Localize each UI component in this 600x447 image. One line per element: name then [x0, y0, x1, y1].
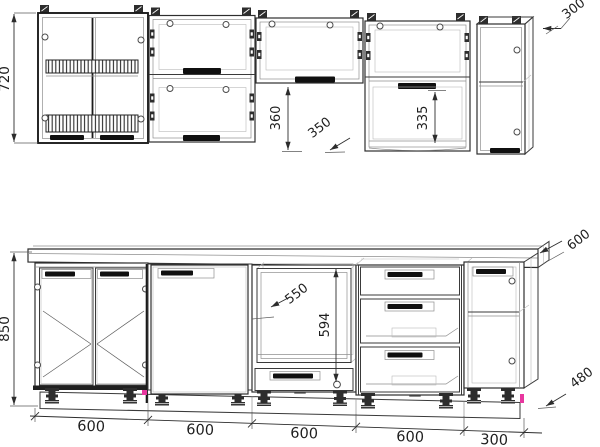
drawing-canvas: 720 360 350 335 300	[0, 0, 600, 447]
wall-cabinet-short-flap	[256, 10, 363, 83]
dim-label-720: 720	[0, 66, 13, 92]
base-cabinet-drawers	[356, 258, 472, 409]
leader-350	[330, 138, 350, 150]
dim-label-300: 300	[559, 0, 588, 23]
dim-label-335: 335	[416, 106, 431, 131]
wall-cabinet-narrow-shelf	[477, 16, 533, 154]
door-handle	[45, 272, 75, 277]
cabinet-foot	[257, 391, 271, 407]
cabinet-foot	[439, 393, 453, 409]
chain-label-4: 600	[396, 429, 424, 446]
hinge-icon	[150, 48, 155, 57]
hinge-icon	[150, 30, 155, 39]
plate-rack-lower	[46, 115, 138, 132]
cabinet-foot	[501, 388, 515, 404]
dim-label-360: 360	[269, 106, 284, 131]
drawer-front-1	[361, 267, 460, 295]
door-handle	[476, 269, 506, 274]
chain-label-2: 600	[186, 422, 214, 439]
dim-label-480: 480	[567, 365, 596, 392]
hanger-bracket-icon	[40, 5, 49, 13]
dim-label-600: 600	[564, 227, 593, 254]
flap-handle	[183, 135, 220, 141]
dim-label-850: 850	[0, 316, 13, 342]
leader-480	[546, 394, 566, 406]
cabinet-foot	[123, 388, 137, 404]
plate-rack-upper	[46, 60, 138, 73]
door-handle	[490, 148, 520, 153]
cabinet-frame	[256, 18, 363, 83]
chain-line	[30, 416, 542, 433]
hanger-bracket-icon	[242, 8, 251, 16]
cabinet-foot	[467, 388, 481, 404]
door	[151, 265, 248, 394]
drawer-handle	[388, 304, 423, 309]
chain-label-1: 600	[77, 419, 105, 436]
flap-handle	[295, 77, 335, 83]
hanger-bracket-icon	[134, 5, 143, 13]
door-left	[40, 268, 94, 385]
base-cabinet-two-doors	[33, 263, 150, 404]
drawer-handle	[388, 353, 423, 358]
cabinet-foot	[361, 393, 375, 409]
base-cabinet-tall-door	[148, 264, 252, 406]
cabinet-foot	[333, 391, 347, 407]
drawer-handle	[273, 374, 313, 379]
flap-handle	[183, 68, 221, 74]
hanger-bracket-icon	[258, 10, 267, 18]
accent-marker	[142, 390, 147, 395]
chain-label-5: 300	[480, 432, 508, 447]
base-cabinet-oven-niche	[252, 263, 358, 407]
wall-cabinets-row: 720 360 350 335 300	[0, 0, 588, 154]
base-cabinets-row: 600 600 600 600 300 850 594 550 600 480	[0, 227, 596, 447]
chain-label-3: 600	[290, 426, 318, 443]
drawer-handle	[388, 272, 423, 277]
oven-niche-opening	[257, 269, 351, 363]
base-cabinet-end-unit	[464, 253, 538, 404]
accent-marker	[520, 394, 524, 403]
shelf-pin	[42, 34, 48, 40]
dim-label-350: 350	[305, 115, 334, 142]
hanger-bracket-icon	[151, 8, 160, 16]
dim-label-594: 594	[318, 313, 333, 338]
wall-cabinet-dish-rack	[38, 5, 148, 143]
kitchen-technical-drawing: 720 360 350 335 300	[0, 0, 600, 447]
flap-handle	[398, 83, 436, 89]
hinge-icon	[366, 33, 371, 42]
door-handle	[100, 272, 129, 277]
door-handle	[161, 271, 193, 276]
door-handle	[50, 135, 84, 140]
hinge-icon	[257, 32, 262, 41]
door-handle	[100, 135, 134, 140]
wall-cabinet-two-flaps	[149, 8, 255, 143]
hanger-bracket-icon	[367, 13, 376, 21]
cabinet-foot	[45, 388, 59, 404]
